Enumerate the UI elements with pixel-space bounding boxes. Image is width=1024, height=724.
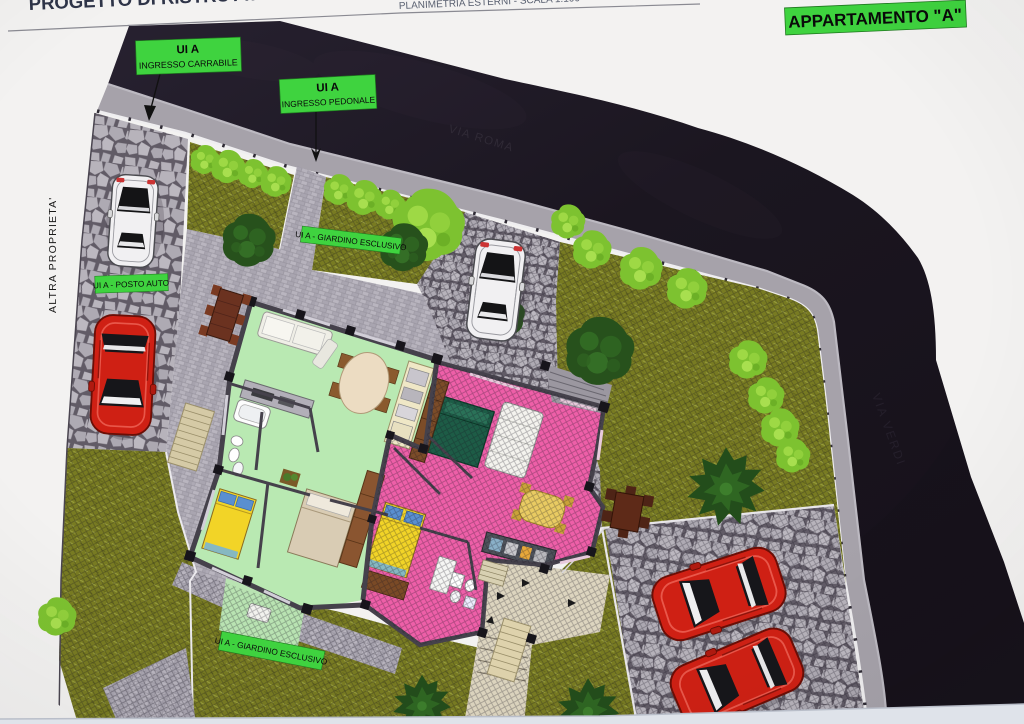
svg-text:ALTRA PROPRIETA': ALTRA PROPRIETA' (47, 196, 59, 313)
svg-text:UI A: UI A (316, 81, 339, 94)
svg-text:UI A: UI A (176, 44, 199, 57)
